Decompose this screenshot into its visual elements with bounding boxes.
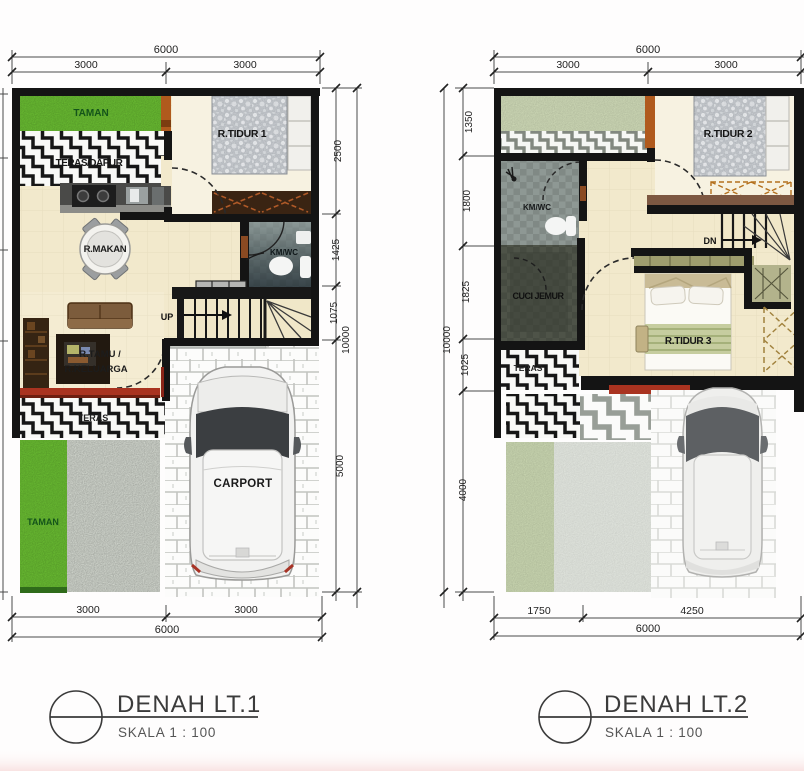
svg-text:R.TIDUR 2: R.TIDUR 2 bbox=[704, 128, 753, 140]
svg-text:10000: 10000 bbox=[442, 326, 453, 354]
svg-text:TERAS/DAPUR: TERAS/DAPUR bbox=[56, 158, 124, 169]
svg-text:R.TIDUR 3: R.TIDUR 3 bbox=[665, 336, 712, 347]
svg-text:1025: 1025 bbox=[460, 353, 471, 376]
svg-text:3000: 3000 bbox=[234, 604, 258, 616]
svg-text:R.TAMU /: R.TAMU / bbox=[79, 349, 121, 360]
svg-text:KM/WC: KM/WC bbox=[270, 248, 298, 257]
svg-text:4250: 4250 bbox=[680, 605, 704, 617]
svg-text:DENAH LT.1: DENAH LT.1 bbox=[117, 691, 261, 718]
svg-text:3000: 3000 bbox=[556, 59, 580, 71]
svg-text:DN: DN bbox=[704, 236, 717, 246]
svg-text:6000: 6000 bbox=[636, 623, 660, 635]
svg-text:5000: 5000 bbox=[335, 454, 346, 477]
svg-text:1800: 1800 bbox=[462, 189, 473, 212]
svg-text:TERAS: TERAS bbox=[78, 413, 109, 423]
svg-text:6000: 6000 bbox=[154, 44, 178, 56]
svg-text:1425: 1425 bbox=[331, 238, 342, 261]
svg-text:SKALA 1 : 100: SKALA 1 : 100 bbox=[605, 725, 703, 740]
svg-text:TAMAN: TAMAN bbox=[73, 108, 108, 119]
svg-text:2500: 2500 bbox=[333, 139, 344, 162]
svg-text:10000: 10000 bbox=[341, 326, 352, 354]
svg-text:CARPORT: CARPORT bbox=[214, 478, 273, 490]
svg-text:1350: 1350 bbox=[464, 110, 475, 133]
svg-text:3000: 3000 bbox=[714, 59, 738, 71]
svg-text:6000: 6000 bbox=[636, 44, 660, 56]
svg-text:SKALA 1 : 100: SKALA 1 : 100 bbox=[118, 725, 216, 740]
svg-text:6000: 6000 bbox=[155, 624, 179, 636]
svg-text:R.TIDUR 1: R.TIDUR 1 bbox=[218, 128, 267, 140]
svg-text:KM/WC: KM/WC bbox=[523, 203, 551, 212]
svg-text:3000: 3000 bbox=[233, 59, 257, 71]
svg-text:UP: UP bbox=[161, 312, 174, 322]
svg-text:1750: 1750 bbox=[527, 605, 551, 617]
svg-text:TERAS: TERAS bbox=[514, 363, 543, 373]
svg-text:4000: 4000 bbox=[458, 478, 469, 501]
svg-text:1825: 1825 bbox=[461, 280, 472, 303]
svg-text:DENAH LT.2: DENAH LT.2 bbox=[604, 691, 748, 718]
svg-text:R.KELUARGA: R.KELUARGA bbox=[64, 364, 127, 375]
svg-text:CUCI JEMUR: CUCI JEMUR bbox=[512, 291, 564, 301]
svg-text:1075: 1075 bbox=[329, 301, 340, 324]
svg-text:3000: 3000 bbox=[74, 59, 98, 71]
svg-text:TAMAN: TAMAN bbox=[27, 517, 59, 527]
svg-text:3000: 3000 bbox=[76, 604, 100, 616]
svg-text:R.MAKAN: R.MAKAN bbox=[84, 244, 127, 255]
